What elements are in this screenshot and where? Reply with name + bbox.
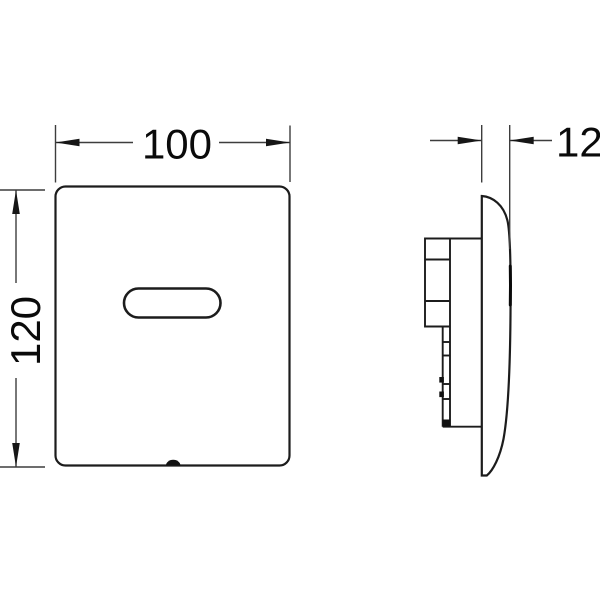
strip-end-block: [443, 420, 451, 427]
front-plate-outline: [56, 187, 290, 466]
mounting-housing: [425, 239, 482, 427]
arrowhead-right: [458, 137, 482, 145]
depth-dimension: 12: [430, 119, 600, 250]
technical-drawing: 100 120 12: [0, 0, 600, 600]
side-plate-profile: [482, 196, 511, 476]
page: { "drawing": { "type": "technical dimens…: [0, 0, 600, 600]
height-dimension: 120: [0, 190, 49, 467]
width-dimension-label: 100: [142, 121, 212, 168]
depth-dimension-label: 12: [556, 119, 600, 166]
front-view: [56, 187, 290, 466]
height-dimension-label: 120: [2, 296, 49, 366]
arrowhead-right: [266, 139, 290, 147]
width-dimension: 100: [56, 121, 291, 183]
side-view: [425, 196, 511, 476]
housing-flange-outline: [425, 239, 482, 327]
arrowhead-left: [510, 137, 534, 145]
strip-nub: [439, 392, 444, 398]
arrowhead-up: [12, 190, 20, 214]
arrowhead-left: [56, 139, 80, 147]
arrowhead-down: [12, 443, 20, 467]
strip-nub: [439, 377, 444, 383]
